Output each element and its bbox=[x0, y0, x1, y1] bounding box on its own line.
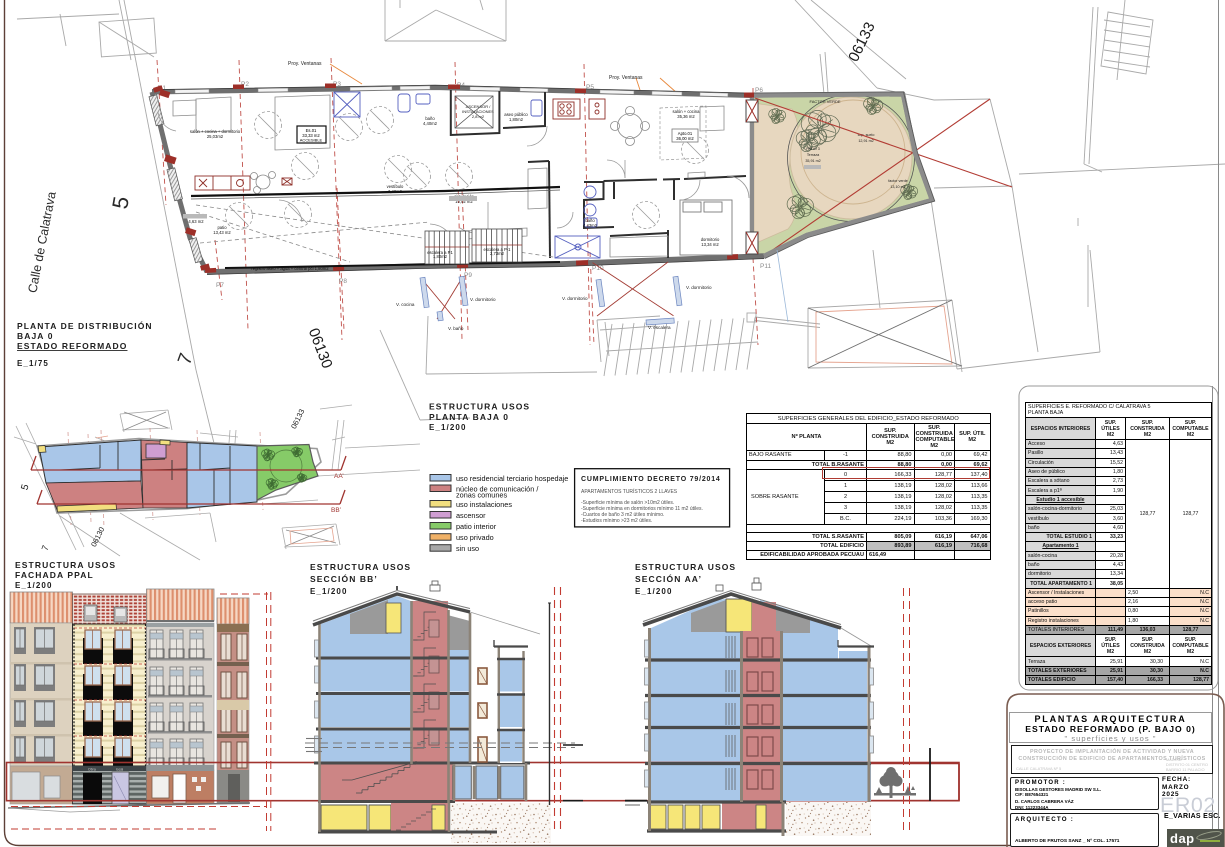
svg-text:5: 5 bbox=[107, 194, 134, 210]
svg-text:-Estudios mínimo >23 m2 útiles: -Estudios mínimo >23 m2 útiles. bbox=[581, 518, 652, 524]
svg-text:1,80m2: 1,80m2 bbox=[509, 117, 524, 122]
svg-text:Terraza: Terraza bbox=[807, 153, 820, 157]
svg-text:BAJA 0: BAJA 0 bbox=[17, 331, 54, 341]
svg-text:V. baño: V. baño bbox=[448, 326, 464, 331]
svg-text:sin uso: sin uso bbox=[456, 544, 479, 553]
svg-text:4,63 m2: 4,63 m2 bbox=[188, 219, 204, 224]
svg-text:4,43m2: 4,43m2 bbox=[583, 223, 598, 228]
svg-text:E_1/200: E_1/200 bbox=[429, 423, 467, 432]
svg-text:7: 7 bbox=[174, 351, 197, 368]
svg-text:P7: P7 bbox=[216, 282, 224, 289]
svg-text:SECCIÓN BB’: SECCIÓN BB’ bbox=[310, 573, 378, 584]
svg-text:2,73m2: 2,73m2 bbox=[490, 251, 505, 256]
svg-text:P9: P9 bbox=[464, 272, 472, 279]
svg-text:APARTAMENTOS TURÍSTICOS 2 LLAV: APARTAMENTOS TURÍSTICOS 2 LLAVES bbox=[581, 488, 678, 495]
svg-text:uso instalaciones: uso instalaciones bbox=[456, 500, 512, 509]
svg-text:uso residencial terciario hosp: uso residencial terciario hospedaje bbox=[456, 474, 568, 483]
svg-text:Calle de Calatrava: Calle de Calatrava bbox=[25, 190, 58, 294]
svg-text:E_1/75: E_1/75 bbox=[17, 359, 49, 368]
svg-text:P8: P8 bbox=[339, 278, 347, 285]
svg-text:7: 7 bbox=[40, 544, 51, 552]
svg-text:PATIO 3: PATIO 3 bbox=[806, 147, 820, 151]
svg-text:ESTRUCTURA USOS: ESTRUCTURA USOS bbox=[15, 560, 116, 570]
svg-text:BB’: BB’ bbox=[331, 507, 342, 514]
svg-text:AA’: AA’ bbox=[334, 473, 344, 480]
svg-text:FACHADA PPAL: FACHADA PPAL bbox=[15, 570, 94, 580]
svg-text:Obra: Obra bbox=[88, 768, 96, 772]
svg-text:06130: 06130 bbox=[305, 326, 336, 371]
svg-text:13,43 m2: 13,43 m2 bbox=[213, 230, 231, 235]
svg-text:35,36 m2: 35,36 m2 bbox=[677, 114, 695, 119]
svg-text:13,34 m2: 13,34 m2 bbox=[701, 242, 719, 247]
svg-text:ESTRUCTURA USOS: ESTRUCTURA USOS bbox=[310, 562, 411, 572]
svg-text:zonas comunes: zonas comunes bbox=[456, 491, 507, 500]
svg-text:4,40m2: 4,40m2 bbox=[423, 121, 438, 126]
svg-text:1,80m2: 1,80m2 bbox=[433, 254, 448, 259]
svg-text:factor verde: factor verde bbox=[888, 179, 907, 183]
svg-text:35,91 m2: 35,91 m2 bbox=[805, 159, 820, 163]
svg-text:V. cocina: V. cocina bbox=[396, 302, 415, 307]
svg-text:registro aseo + agua + central: registro aseo + agua + central pci 1,80m… bbox=[251, 266, 329, 271]
svg-text:3,40m2: 3,40m2 bbox=[388, 189, 403, 194]
svg-text:13,10 m2: 13,10 m2 bbox=[890, 185, 905, 189]
svg-text:12,91 m2: 12,91 m2 bbox=[858, 139, 873, 143]
svg-text:E_1/200: E_1/200 bbox=[15, 581, 53, 590]
svg-text:06133: 06133 bbox=[845, 20, 879, 65]
svg-text:uso privado: uso privado bbox=[456, 533, 494, 542]
svg-text:FACTOR VERDE: FACTOR VERDE bbox=[809, 99, 840, 104]
svg-text:E_1/200: E_1/200 bbox=[635, 587, 673, 596]
svg-text:25,03m2: 25,03m2 bbox=[207, 134, 224, 139]
svg-text:V. escalera: V. escalera bbox=[648, 325, 671, 330]
svg-text:PLANTA DE DISTRIBUCIÓN: PLANTA DE DISTRIBUCIÓN bbox=[17, 320, 153, 331]
svg-text:local: local bbox=[116, 768, 123, 772]
svg-text:V. dormitorio: V. dormitorio bbox=[470, 297, 496, 302]
svg-text:36,00 m2: 36,00 m2 bbox=[676, 136, 694, 141]
svg-text:Proy. Ventanas: Proy. Ventanas bbox=[609, 75, 643, 81]
svg-text:Proy. Ventanas: Proy. Ventanas bbox=[288, 61, 322, 67]
svg-text:ESTRUCTURA USOS: ESTRUCTURA USOS bbox=[635, 562, 736, 572]
svg-text:06133: 06133 bbox=[289, 408, 306, 431]
svg-text:SECCIÓN AA’: SECCIÓN AA’ bbox=[635, 573, 702, 584]
svg-text:V. dormitorio: V. dormitorio bbox=[562, 296, 588, 301]
svg-text:2,8 m2: 2,8 m2 bbox=[472, 114, 485, 119]
svg-text:E_1/200: E_1/200 bbox=[310, 587, 348, 596]
svg-text:P11: P11 bbox=[760, 263, 771, 270]
svg-text:CUMPLIMIENTO DECRETO 79/2014: CUMPLIMIENTO DECRETO 79/2014 bbox=[581, 476, 721, 483]
svg-text:ascensor: ascensor bbox=[456, 511, 486, 520]
svg-text:ESTADO REFORMADO: ESTADO REFORMADO bbox=[17, 341, 127, 351]
svg-text:5: 5 bbox=[20, 483, 32, 492]
svg-text:V. dormitorio: V. dormitorio bbox=[686, 285, 712, 290]
svg-text:ACCESIBLE: ACCESIBLE bbox=[300, 138, 323, 143]
svg-text:ESTRUCTURA USOS: ESTRUCTURA USOS bbox=[429, 402, 530, 412]
svg-text:patio interior: patio interior bbox=[456, 522, 497, 531]
svg-text:PLANTA BAJA 0: PLANTA BAJA 0 bbox=[429, 412, 509, 422]
